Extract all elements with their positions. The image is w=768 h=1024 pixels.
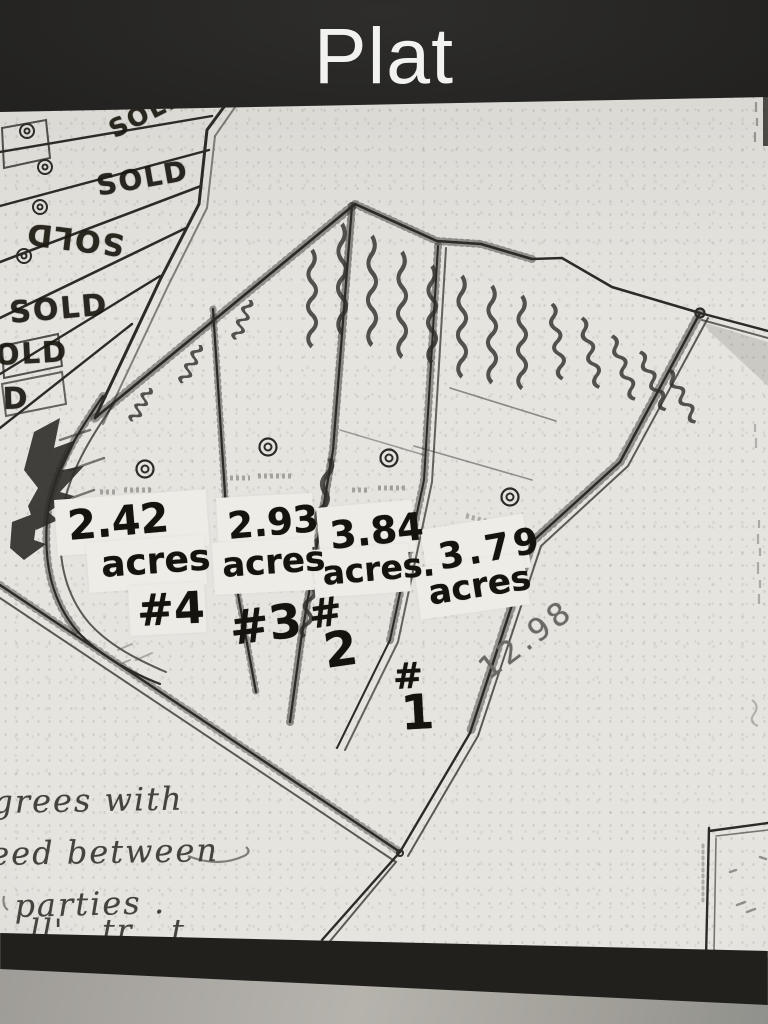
handwritten-note-line1: grees with	[0, 783, 184, 818]
lot4-num: 4	[173, 582, 206, 635]
plat-paper: SOLD SOLD SOLD SOLD OLD D 2.42 acres #4 …	[0, 0, 768, 1024]
lot4-hash: #	[136, 584, 175, 637]
sold-stamp: OLD	[0, 334, 69, 372]
screenshot-root: SOLD SOLD SOLD SOLD OLD D 2.42 acres #4 …	[0, 0, 768, 1024]
acreage-value-lot4: 2.42	[66, 497, 170, 547]
lot-number-lot3: #3	[227, 597, 304, 652]
lot-number-lot1: # 1	[392, 658, 435, 738]
lot3-num: 3	[266, 593, 305, 652]
right-edge-faint-text	[752, 102, 760, 726]
lot-number-lot4: #4	[136, 586, 206, 633]
page-title: Plat	[0, 16, 768, 95]
sold-stamp: D	[2, 381, 30, 417]
lot1-num: 1	[400, 688, 436, 738]
lot2-num: 2	[321, 624, 361, 676]
acreage-unit-lot2: acres.	[321, 547, 436, 590]
bottom-right-box	[703, 823, 768, 958]
paper-edge-shadow	[763, 96, 768, 146]
acreage-value-lot3: 2.93	[226, 500, 320, 545]
handwritten-note-line2: eed between	[0, 834, 219, 870]
acreage-unit-lot4: acres	[100, 540, 211, 584]
acreage-unit-lot3: acres	[221, 542, 326, 583]
